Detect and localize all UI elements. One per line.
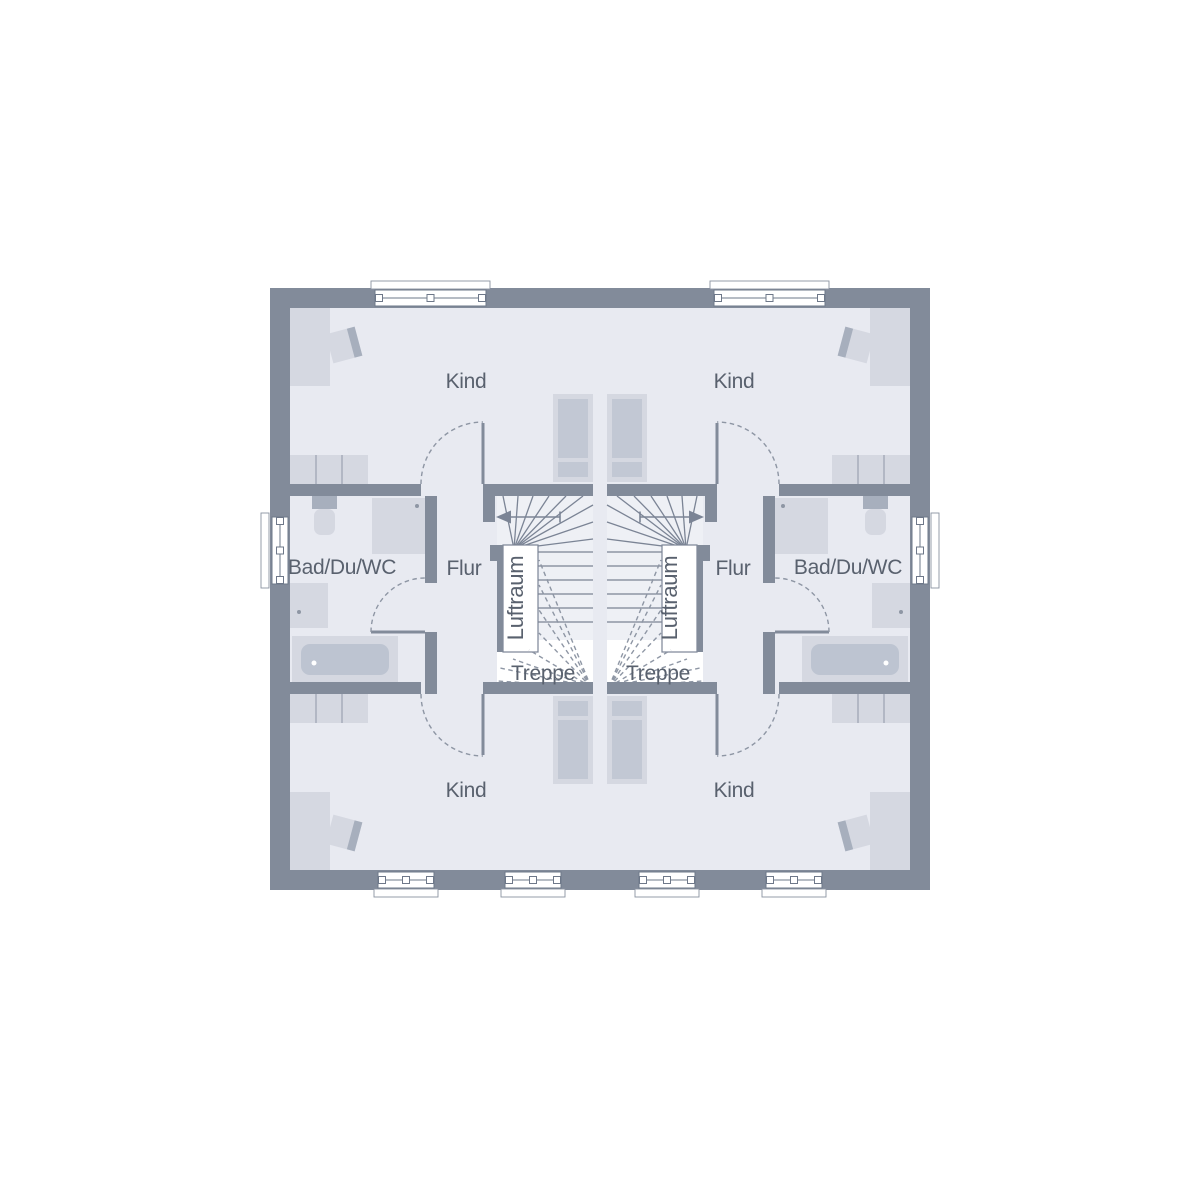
floor-area	[290, 308, 910, 870]
label-kind-bottom-right: Kind	[714, 779, 755, 802]
outer-wall-left	[270, 288, 290, 890]
label-bath-left: Bad/Du/WC	[288, 556, 396, 579]
label-stairs-left: Treppe	[511, 662, 575, 685]
outer-wall-bottom	[270, 870, 930, 890]
label-hall-right: Flur	[716, 557, 751, 580]
label-stairs-right: Treppe	[626, 662, 690, 685]
label-kind-top-left: Kind	[446, 370, 487, 393]
label-kind-bottom-left: Kind	[446, 779, 487, 802]
floor-plan-page: Kind Kind Kind Kind Bad/Du/WC Bad/Du/WC …	[0, 0, 1200, 1200]
label-bath-right: Bad/Du/WC	[794, 556, 902, 579]
outer-wall-right	[910, 288, 930, 890]
outer-wall-top	[270, 288, 930, 308]
label-airspace-right: Luftraum	[657, 556, 682, 640]
label-airspace-left: Luftraum	[503, 556, 528, 640]
label-kind-top-right: Kind	[714, 370, 755, 393]
floor-plan-svg: Kind Kind Kind Kind Bad/Du/WC Bad/Du/WC …	[0, 0, 1200, 1200]
label-hall-left: Flur	[447, 557, 482, 580]
